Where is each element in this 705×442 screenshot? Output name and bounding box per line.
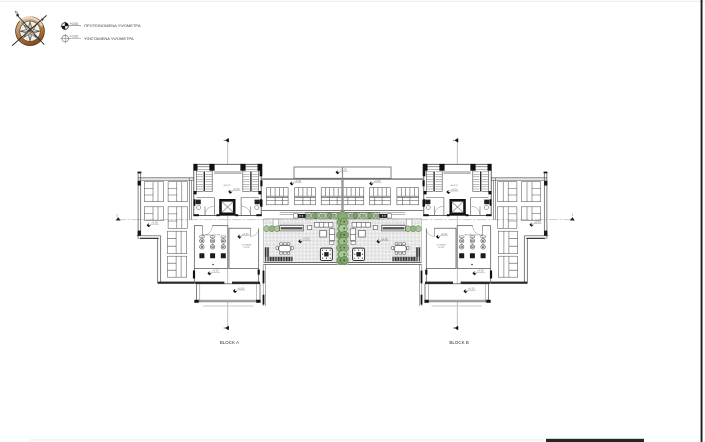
svg-text:MECHANICAL ROOM: MECHANICAL ROOM — [465, 233, 484, 236]
svg-text:ΠΡΟΤΕΙΝΟΜΕΝΑ ΥΨΟΜΕΤΡΑ: ΠΡΟΤΕΙΝΟΜΕΝΑ ΥΨΟΜΕΤΡΑ — [84, 23, 141, 28]
svg-text:STORAGE: STORAGE — [242, 244, 252, 247]
svg-text:ΥΦΙΣΤΑΜΕΝΑ ΥΨΟΜΕΤΡΑ: ΥΦΙΣΤΑΜΕΝΑ ΥΨΟΜΕΤΡΑ — [84, 36, 134, 41]
svg-text:BLOCK B: BLOCK B — [449, 340, 469, 345]
svg-text:STORAGE: STORAGE — [437, 244, 447, 247]
svg-text:ΑΙΘΡΙΟ: ΑΙΘΡΙΟ — [451, 184, 459, 187]
svg-text:ROOM: ROOM — [244, 247, 250, 249]
svg-text:MECHANICAL ROOM: MECHANICAL ROOM — [202, 233, 221, 236]
svg-text:BLOCK A: BLOCK A — [220, 340, 239, 345]
svg-text:ΑΙΘΡΙΟ: ΑΙΘΡΙΟ — [224, 184, 232, 187]
svg-text:+0.00: +0.00 — [70, 34, 79, 38]
svg-text:ROOM: ROOM — [438, 247, 444, 249]
svg-text:+0.00: +0.00 — [151, 221, 158, 225]
svg-text:+0.00: +0.00 — [70, 22, 79, 26]
